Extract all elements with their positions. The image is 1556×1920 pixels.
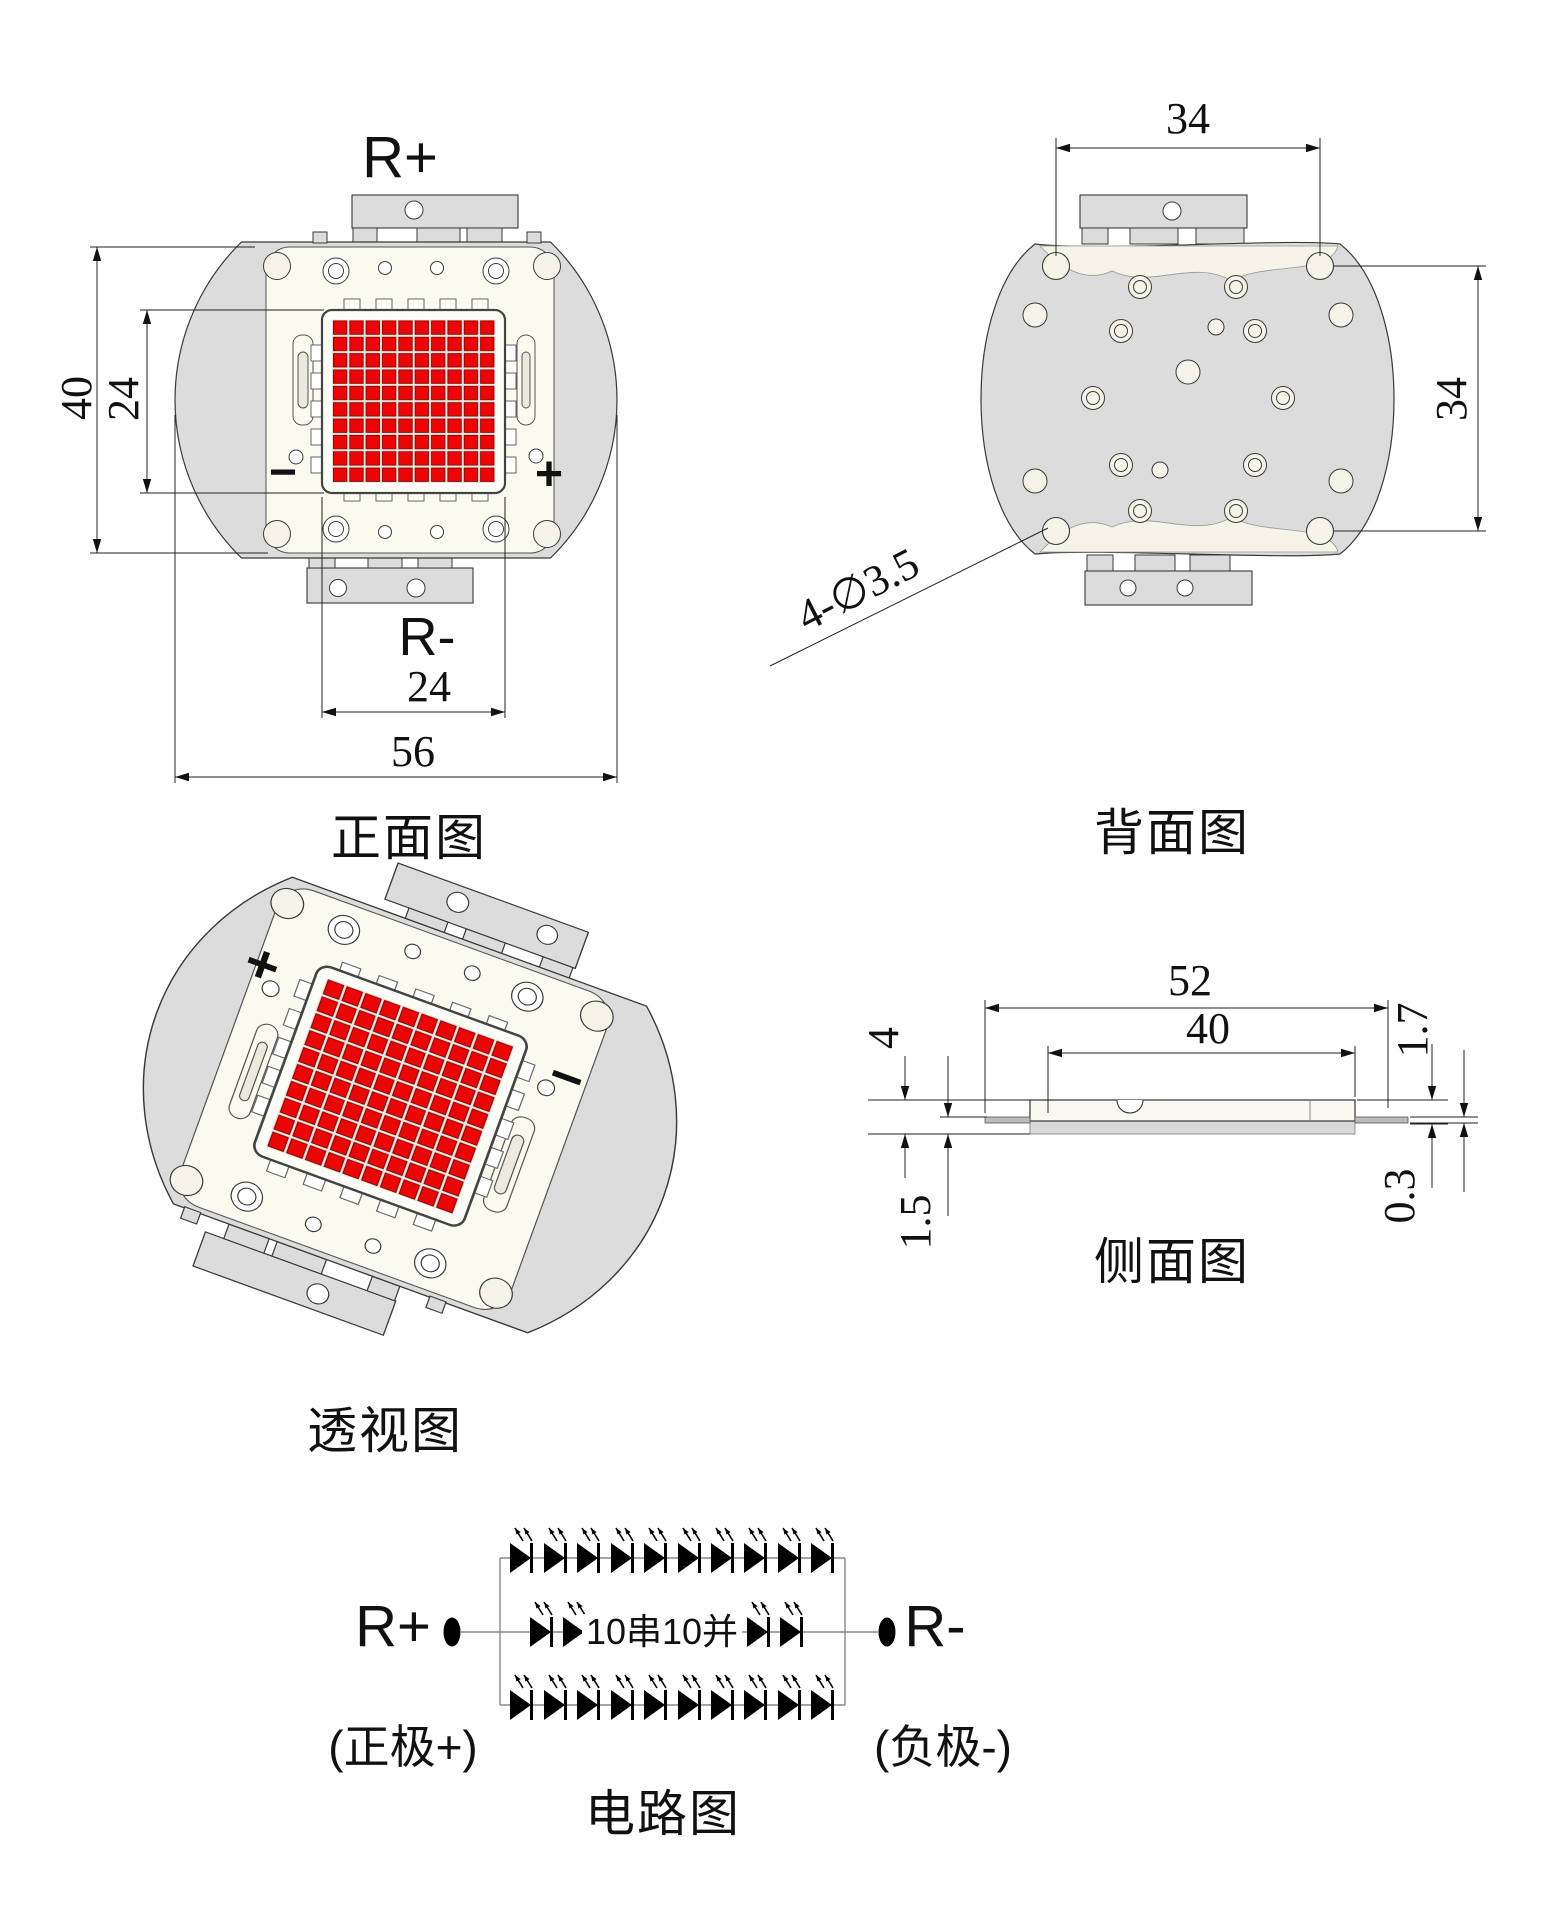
circuit-positive-terminal: R+ — [355, 1598, 431, 1656]
side-dim-total-thickness: 4 — [862, 1027, 906, 1049]
front-dim-body-height: 40 — [55, 376, 99, 420]
circuit-negative-note: (负极-) — [874, 1724, 1012, 1770]
perspective-view-drawing — [80, 803, 740, 1409]
circuit-positive-note: (正极+) — [328, 1724, 478, 1770]
side-view-title: 侧面图 — [1094, 1237, 1250, 1287]
circuit-negative-terminal: R- — [904, 1598, 965, 1656]
front-dim-body-width: 56 — [391, 730, 435, 774]
front-top-terminal-label: R+ — [362, 129, 438, 187]
back-body — [981, 242, 1394, 555]
side-dim-lead-thickness: 0.3 — [1378, 1169, 1422, 1224]
side-dim-substrate-length: 52 — [1168, 959, 1212, 1003]
front-bottom-terminal-label: R- — [399, 610, 456, 664]
circuit-title: 电路图 — [585, 1789, 741, 1839]
front-dim-emitter-width: 24 — [407, 665, 451, 709]
perspective-view-title: 透视图 — [307, 1406, 463, 1456]
circuit-topology-label: 10串10并 — [582, 1614, 742, 1650]
negative-terminal-dot — [879, 1618, 896, 1647]
side-dim-ceramic-length: 40 — [1186, 1007, 1230, 1051]
right-lead — [1355, 1117, 1408, 1123]
led-module-datasheet-drawing: − + — [0, 0, 1556, 1920]
front-view-drawing — [90, 195, 617, 783]
side-dim-top-thickness: 1.7 — [1391, 1003, 1435, 1058]
back-view-title: 背面图 — [1094, 808, 1250, 858]
left-lead — [985, 1117, 1030, 1123]
back-dim-hole-span-height: 34 — [1430, 377, 1474, 421]
front-dim-emitter-height: 24 — [102, 377, 146, 421]
side-dim-base-thickness: 1.5 — [894, 1195, 938, 1250]
front-view-title: 正面图 — [331, 813, 487, 863]
drawing-canvas: − + — [0, 0, 1556, 1920]
positive-terminal-dot — [444, 1618, 461, 1647]
back-dim-hole-span-width: 34 — [1166, 97, 1210, 141]
